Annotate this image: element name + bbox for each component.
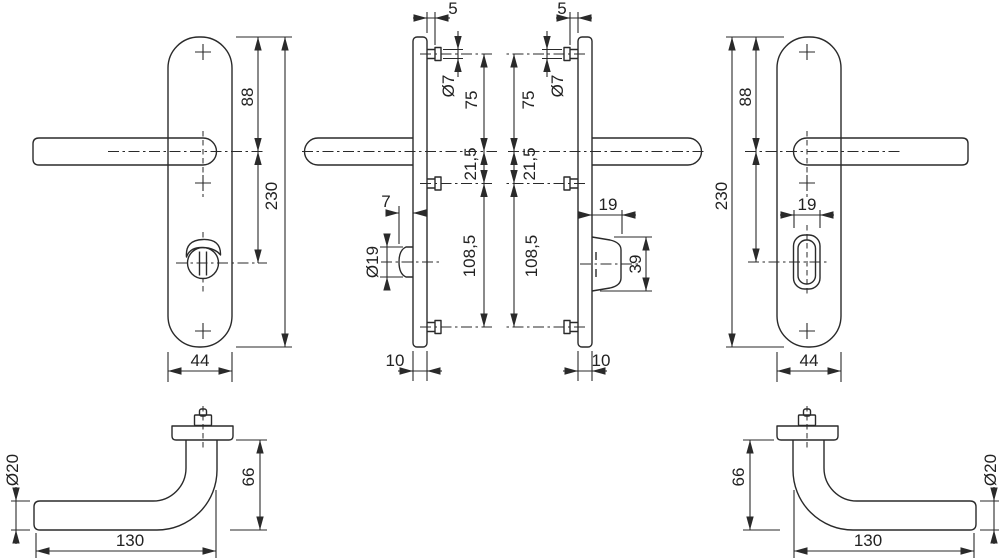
dim-label-5: 5 <box>557 0 566 18</box>
dim-label-44: 44 <box>191 351 210 370</box>
dim-label-21-5: 21,5 <box>461 147 480 180</box>
lever-profile-view-left: Ø20 66 130 <box>3 406 267 558</box>
lever-handle-outline <box>794 138 969 165</box>
dim-label-19: 19 <box>798 195 817 214</box>
dim-label-66: 66 <box>729 468 748 487</box>
dim-label-230: 230 <box>712 182 731 210</box>
backplate-outline <box>168 37 232 347</box>
backplate-outline <box>777 37 841 347</box>
screw-mark <box>799 44 815 339</box>
dim-label-75: 75 <box>519 91 538 110</box>
dim-label-dia7: Ø7 <box>439 75 458 98</box>
dim-label-dia20: Ø20 <box>3 454 22 486</box>
dim-label-10: 10 <box>592 351 611 370</box>
dim-label-88: 88 <box>238 88 257 107</box>
plate-profile <box>413 37 427 347</box>
side-view-left-plate: 5 Ø7 75 21,5 108,5 7 Ø19 10 <box>302 0 497 381</box>
dim-label-7: 7 <box>381 192 390 211</box>
front-view-right-plate: 88 230 19 44 <box>712 37 968 382</box>
dim-label-88: 88 <box>736 88 755 107</box>
dim-label-21-5: 21,5 <box>520 147 539 180</box>
dimension-lines <box>380 12 484 381</box>
dim-label-dia20: Ø20 <box>981 454 1000 486</box>
technical-drawing-page: 88 230 44 <box>0 0 1000 558</box>
dim-label-dia19: Ø19 <box>363 246 382 278</box>
dim-label-39: 39 <box>626 255 645 274</box>
dimension-lines <box>514 12 652 381</box>
side-view-right-plate: 5 Ø7 75 21,5 108,5 19 39 10 <box>506 0 704 381</box>
front-view-left-plate: 88 230 44 <box>33 37 292 382</box>
dim-label-108-5: 108,5 <box>460 235 479 278</box>
plate-profile <box>578 37 592 347</box>
screw-mark <box>195 44 211 339</box>
dim-label-130: 130 <box>854 531 882 550</box>
dim-label-44: 44 <box>800 351 819 370</box>
dim-label-130: 130 <box>116 531 144 550</box>
dim-label-19: 19 <box>599 195 618 214</box>
tab-centerlines <box>506 54 585 327</box>
dim-label-66: 66 <box>239 468 258 487</box>
lever-body <box>34 440 217 530</box>
lever-body <box>793 440 976 530</box>
dim-label-5: 5 <box>448 0 457 18</box>
dim-label-10: 10 <box>386 351 405 370</box>
dim-label-230: 230 <box>262 182 281 210</box>
door-handle-dimension-drawing: 88 230 44 <box>0 0 1000 558</box>
lever-profile-view-right: 66 Ø20 130 <box>729 406 1000 558</box>
dim-label-75: 75 <box>462 91 481 110</box>
dim-label-dia7: Ø7 <box>548 75 567 98</box>
dim-label-108-5: 108,5 <box>522 235 541 278</box>
